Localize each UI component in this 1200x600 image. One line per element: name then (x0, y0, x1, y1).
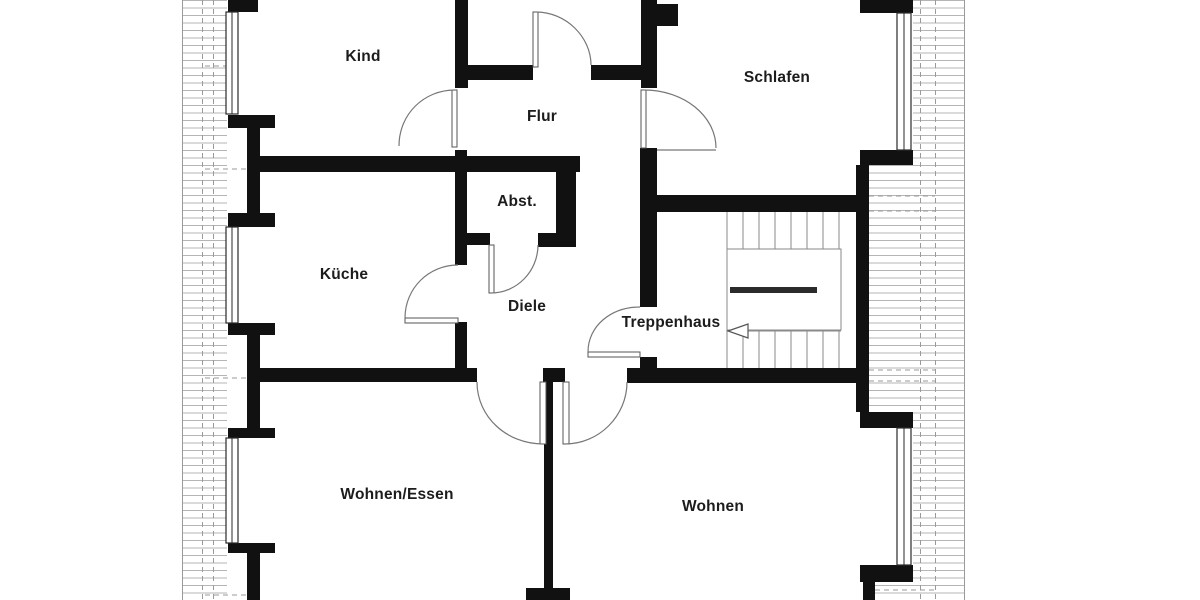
background (0, 0, 1200, 600)
interior-walls-part (591, 65, 641, 80)
room-label-kind: Kind (345, 48, 380, 65)
window-kind (226, 12, 238, 114)
room-label-diele: Diele (508, 298, 546, 315)
interior-walls-part (543, 368, 565, 382)
door-treppenhaus-part (588, 352, 640, 357)
interior-walls-part (526, 588, 570, 600)
interior-walls-part (455, 322, 467, 368)
exterior-walls-part (228, 213, 275, 227)
interior-walls-part (627, 368, 869, 383)
chimney (657, 4, 678, 26)
exterior-walls-part (228, 115, 275, 128)
stair-handrail (730, 287, 817, 293)
interior-walls-part (258, 156, 455, 172)
interior-walls-part (556, 172, 576, 247)
room-label-wohnen: Wohnen (682, 498, 744, 515)
door-kueche-part (405, 318, 458, 323)
interior-walls-part (640, 357, 657, 368)
interior-walls-part (538, 233, 556, 247)
exterior-walls-part (228, 0, 258, 12)
exterior-walls-part (247, 553, 260, 600)
roof-hatch-right-part (875, 582, 913, 600)
exterior-walls-part (228, 323, 275, 335)
window-kueche (226, 227, 238, 323)
exterior-walls-part (228, 428, 275, 438)
interior-walls-part (467, 156, 580, 172)
exterior-walls-part (860, 0, 913, 13)
window-wohnen (897, 428, 911, 565)
room-label-treppenhaus: Treppenhaus (622, 314, 721, 331)
interior-walls-part (455, 172, 467, 265)
window-schlafen (897, 13, 911, 150)
interior-walls-part (641, 0, 657, 88)
exterior-walls-part (860, 412, 913, 428)
door-wohnen-essen-part (540, 382, 546, 444)
room-label-schlafen: Schlafen (744, 69, 810, 86)
floor-plan-canvas: Kind Schlafen Flur Abst. Küche Diele Tre… (0, 0, 1200, 600)
interior-walls-part (455, 0, 468, 88)
door-top-room-part (533, 12, 538, 67)
door-wohnen-part (563, 382, 569, 444)
interior-walls-part (247, 368, 477, 382)
floor-plan-drawing: Kind Schlafen Flur Abst. Küche Diele Tre… (0, 0, 1200, 600)
exterior-walls-part (860, 565, 913, 582)
interior-walls-part (648, 195, 863, 212)
roof-hatch-left-part (182, 0, 227, 600)
door-kind-part (452, 90, 457, 147)
room-label-kueche: Küche (320, 266, 369, 283)
door-schlafen-part (641, 90, 646, 148)
interior-walls-part (455, 150, 467, 172)
interior-walls-part (467, 233, 490, 245)
exterior-walls-part (860, 150, 913, 165)
interior-walls-part (640, 148, 657, 307)
roof-hatch-right-part (869, 165, 913, 412)
door-abstellraum-part (489, 245, 494, 293)
room-label-flur: Flur (527, 108, 557, 125)
room-label-abstellraum: Abst. (497, 193, 537, 210)
room-label-wohnen-essen: Wohnen/Essen (340, 486, 453, 503)
exterior-walls-part (228, 543, 275, 553)
window-wohnen-essen (226, 438, 238, 543)
exterior-walls-part (863, 582, 875, 600)
interior-walls-part (468, 65, 533, 80)
